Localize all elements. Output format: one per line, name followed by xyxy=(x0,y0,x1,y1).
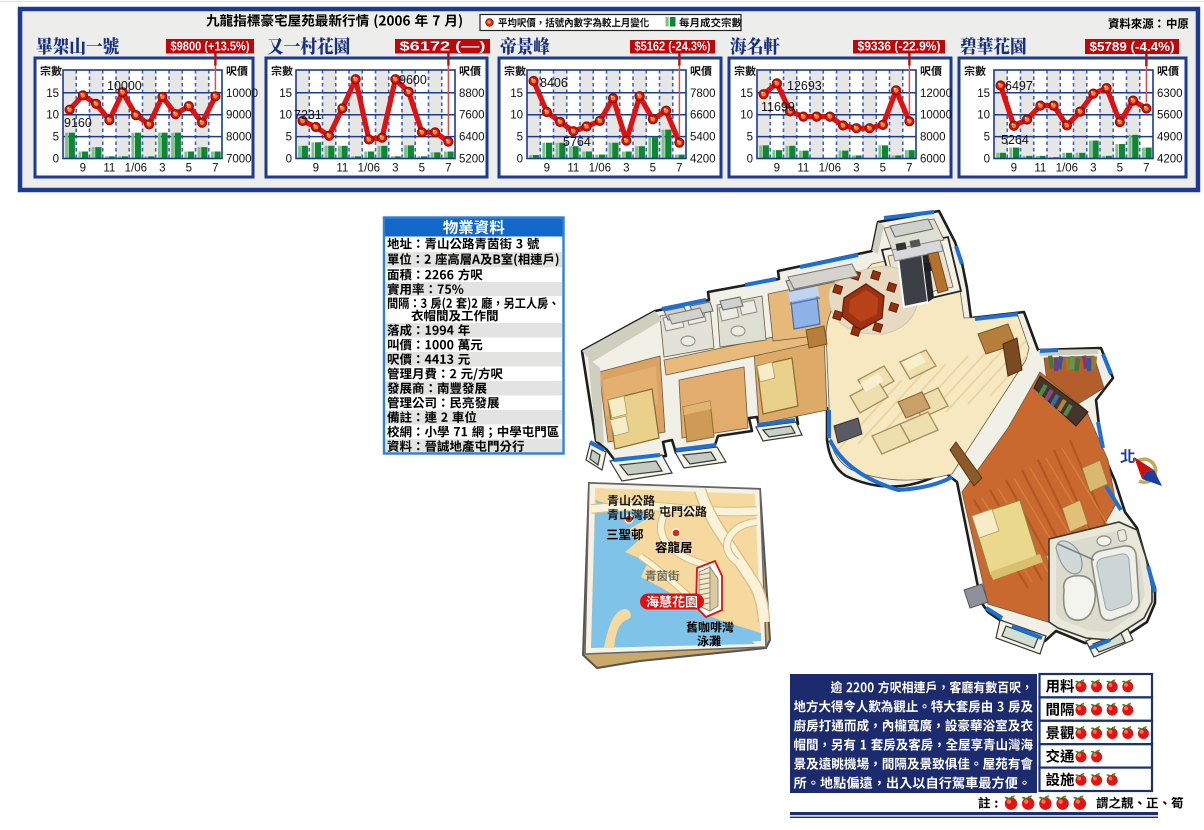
svg-text:$5789 (-4.4%): $5789 (-4.4%) xyxy=(1090,39,1175,54)
svg-text:3: 3 xyxy=(853,163,859,175)
svg-text:7800: 7800 xyxy=(690,88,716,100)
svg-text:0: 0 xyxy=(517,154,523,166)
svg-text:10: 10 xyxy=(46,110,59,122)
svg-text:5: 5 xyxy=(880,163,886,175)
svg-text:11: 11 xyxy=(1034,163,1046,175)
svg-text:1/06: 1/06 xyxy=(1056,163,1078,175)
svg-text:$6172 (—): $6172 (—) xyxy=(400,38,486,53)
svg-text:3: 3 xyxy=(159,163,165,175)
svg-text:5: 5 xyxy=(286,132,292,144)
svg-text:11: 11 xyxy=(797,163,809,175)
svg-text:15: 15 xyxy=(510,88,523,100)
svg-text:10: 10 xyxy=(279,110,292,122)
svg-text:8000: 8000 xyxy=(920,132,946,144)
svg-text:9: 9 xyxy=(313,163,319,175)
svg-text:1/06: 1/06 xyxy=(125,163,147,175)
svg-text:12693: 12693 xyxy=(787,79,822,93)
svg-text:10: 10 xyxy=(740,110,753,122)
svg-text:10: 10 xyxy=(510,110,523,122)
svg-text:9: 9 xyxy=(1011,163,1017,175)
svg-text:7: 7 xyxy=(1143,163,1149,175)
svg-text:7000: 7000 xyxy=(226,154,252,166)
svg-text:7600: 7600 xyxy=(459,110,485,122)
svg-text:0: 0 xyxy=(747,154,753,166)
svg-text:12000: 12000 xyxy=(920,88,952,100)
svg-text:5764: 5764 xyxy=(563,135,591,149)
svg-text:10000: 10000 xyxy=(920,110,952,122)
svg-text:1/06: 1/06 xyxy=(358,163,380,175)
svg-text:$9800 (+13.5%): $9800 (+13.5%) xyxy=(171,38,250,53)
svg-text:3: 3 xyxy=(392,163,398,175)
svg-text:6600: 6600 xyxy=(690,110,716,122)
svg-text:1/06: 1/06 xyxy=(819,163,841,175)
svg-text:10000: 10000 xyxy=(107,79,142,93)
svg-text:3: 3 xyxy=(623,163,629,175)
svg-text:5600: 5600 xyxy=(1157,110,1183,122)
svg-text:9600: 9600 xyxy=(399,73,427,87)
svg-text:10: 10 xyxy=(977,110,990,122)
svg-text:$5162 (-24.3%): $5162 (-24.3%) xyxy=(635,38,711,53)
svg-text:4900: 4900 xyxy=(1157,132,1183,144)
svg-text:7: 7 xyxy=(906,163,912,175)
svg-text:7: 7 xyxy=(212,163,218,175)
svg-text:11: 11 xyxy=(103,163,115,175)
svg-text:5264: 5264 xyxy=(1001,133,1029,147)
svg-text:4200: 4200 xyxy=(1157,154,1183,166)
svg-text:9000: 9000 xyxy=(226,110,252,122)
svg-text:9: 9 xyxy=(80,163,86,175)
svg-text:5: 5 xyxy=(1117,163,1123,175)
svg-text:5400: 5400 xyxy=(690,132,716,144)
svg-text:5: 5 xyxy=(53,132,59,144)
svg-text:8800: 8800 xyxy=(459,88,485,100)
svg-text:8406: 8406 xyxy=(540,76,568,90)
svg-text:15: 15 xyxy=(279,88,292,100)
svg-text:8000: 8000 xyxy=(226,132,252,144)
svg-text:7: 7 xyxy=(676,163,682,175)
svg-text:4200: 4200 xyxy=(690,154,716,166)
svg-text:$9336 (-22.9%): $9336 (-22.9%) xyxy=(858,38,941,53)
svg-text:0: 0 xyxy=(984,154,990,166)
svg-text:5: 5 xyxy=(186,163,192,175)
svg-text:15: 15 xyxy=(977,88,990,100)
svg-text:6497: 6497 xyxy=(1005,79,1033,93)
svg-text:15: 15 xyxy=(46,88,59,100)
svg-text:5: 5 xyxy=(419,163,425,175)
svg-text:3: 3 xyxy=(1090,163,1096,175)
svg-text:9: 9 xyxy=(774,163,780,175)
svg-text:11: 11 xyxy=(567,163,579,175)
svg-text:15: 15 xyxy=(740,88,753,100)
svg-text:5: 5 xyxy=(747,132,753,144)
svg-text:11699: 11699 xyxy=(761,100,795,114)
svg-text:6000: 6000 xyxy=(920,154,946,166)
svg-text:7231: 7231 xyxy=(294,108,322,122)
svg-text:7: 7 xyxy=(445,163,451,175)
svg-text:5: 5 xyxy=(650,163,656,175)
svg-text:6300: 6300 xyxy=(1157,88,1183,100)
svg-text:6400: 6400 xyxy=(459,132,485,144)
svg-text:9: 9 xyxy=(544,163,550,175)
svg-text:1/06: 1/06 xyxy=(589,163,611,175)
svg-text:5200: 5200 xyxy=(459,154,485,166)
svg-text:5: 5 xyxy=(517,132,523,144)
svg-text:11: 11 xyxy=(336,163,348,175)
svg-text:9160: 9160 xyxy=(64,116,92,130)
svg-text:5: 5 xyxy=(984,132,990,144)
svg-text:10000: 10000 xyxy=(226,88,258,100)
svg-text:0: 0 xyxy=(286,154,292,166)
svg-text:0: 0 xyxy=(53,154,59,166)
